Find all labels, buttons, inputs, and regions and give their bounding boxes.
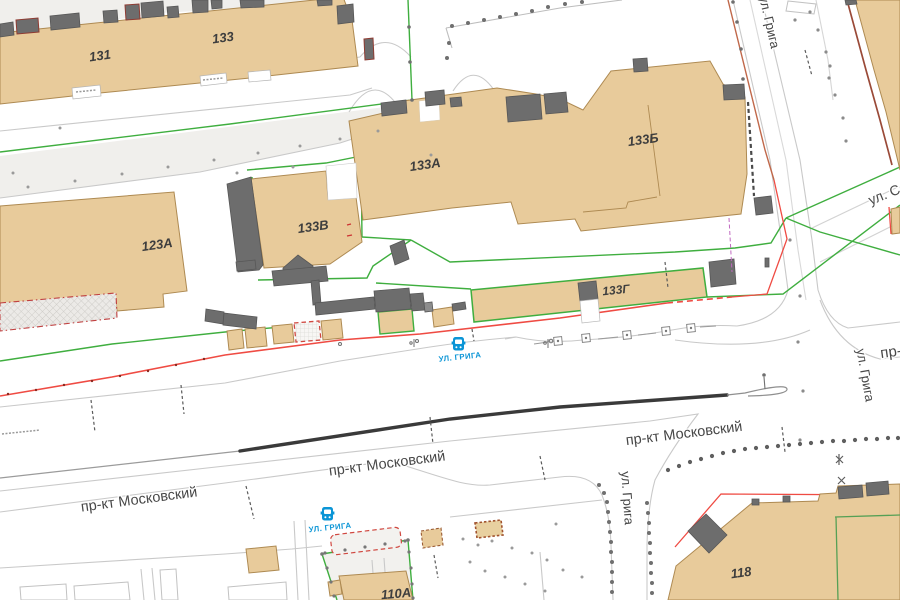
svg-text:110А: 110А bbox=[380, 585, 411, 600]
svg-text:133: 133 bbox=[211, 28, 235, 46]
svg-text:118: 118 bbox=[730, 564, 753, 582]
svg-text:133Г: 133Г bbox=[602, 282, 631, 299]
svg-text:131: 131 bbox=[88, 47, 112, 65]
